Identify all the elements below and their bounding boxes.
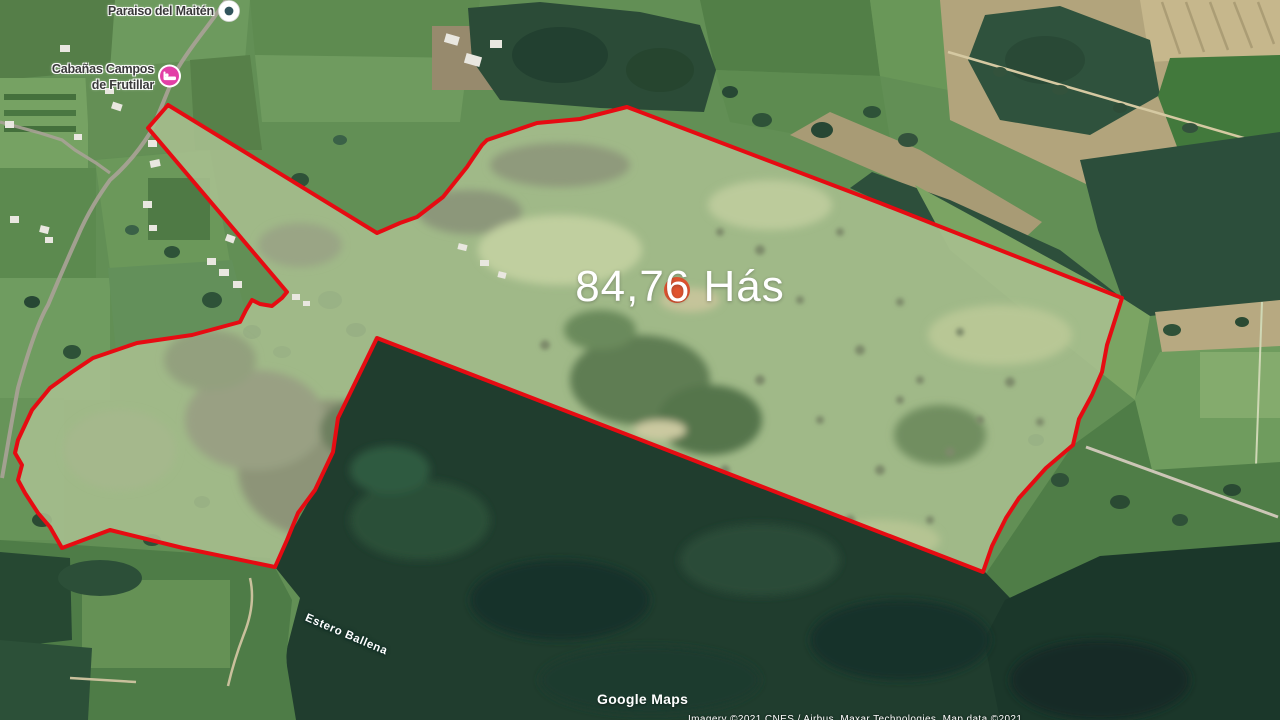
map-canvas <box>0 0 1280 720</box>
poi-label-paraiso[interactable]: Paraiso del Maitén <box>108 3 214 19</box>
poi-marker-cabanas-lodging[interactable] <box>158 65 181 88</box>
satellite-map[interactable]: 84,76 Hás Paraiso del Maitén Cabañas Cam… <box>0 0 1280 720</box>
lodging-icon <box>160 67 179 86</box>
poi-marker-paraiso[interactable] <box>219 1 240 22</box>
map-attribution: Imagery ©2021 CNES / Airbus, Maxar Techn… <box>688 714 1022 720</box>
poi-label-cabanas-line2: de Frutillar <box>52 77 154 93</box>
area-size-label: 84,76 Hás <box>540 262 820 312</box>
poi-label-cabanas-line1: Cabañas Campos <box>52 61 154 77</box>
google-maps-watermark[interactable]: Google Maps <box>597 691 688 707</box>
poi-label-cabanas[interactable]: Cabañas Campos de Frutillar <box>52 61 154 93</box>
poi-dot-icon <box>225 7 234 16</box>
